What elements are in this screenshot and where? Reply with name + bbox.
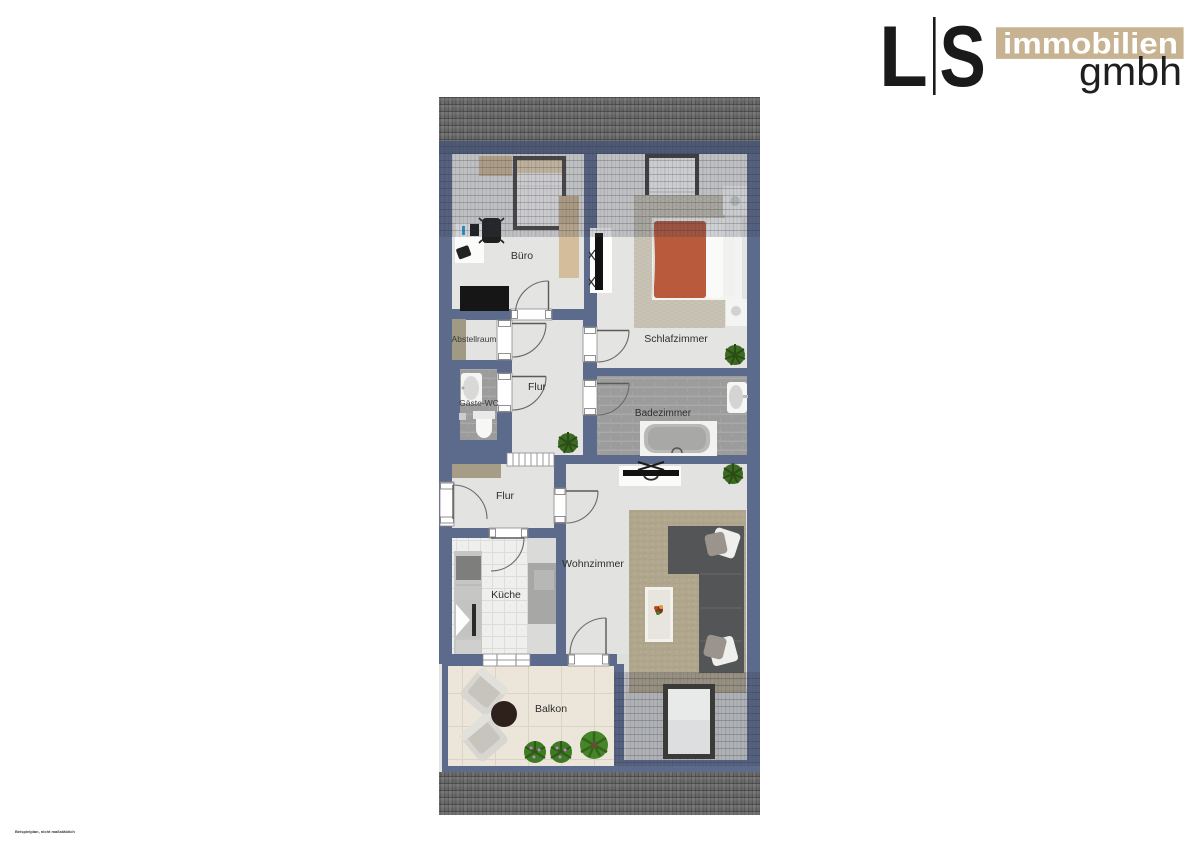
svg-text:S: S: [939, 8, 985, 105]
svg-text:Balkon: Balkon: [535, 703, 567, 715]
svg-text:Wohnzimmer: Wohnzimmer: [562, 558, 624, 570]
svg-text:Badezimmer: Badezimmer: [635, 408, 692, 419]
svg-text:Küche: Küche: [491, 589, 521, 601]
svg-text:Abstellraum: Abstellraum: [452, 334, 497, 344]
svg-text:Flur: Flur: [528, 381, 547, 393]
svg-text:Schlafzimmer: Schlafzimmer: [644, 333, 708, 345]
svg-text:gmbh: gmbh: [1079, 50, 1182, 94]
svg-text:Büro: Büro: [511, 250, 533, 262]
svg-text:Flur: Flur: [496, 490, 515, 502]
svg-text:Beispielplan, nicht maßstäblic: Beispielplan, nicht maßstäblich: [15, 829, 75, 834]
svg-text:L: L: [879, 8, 928, 104]
svg-text:Gäste-WC: Gäste-WC: [459, 398, 499, 408]
